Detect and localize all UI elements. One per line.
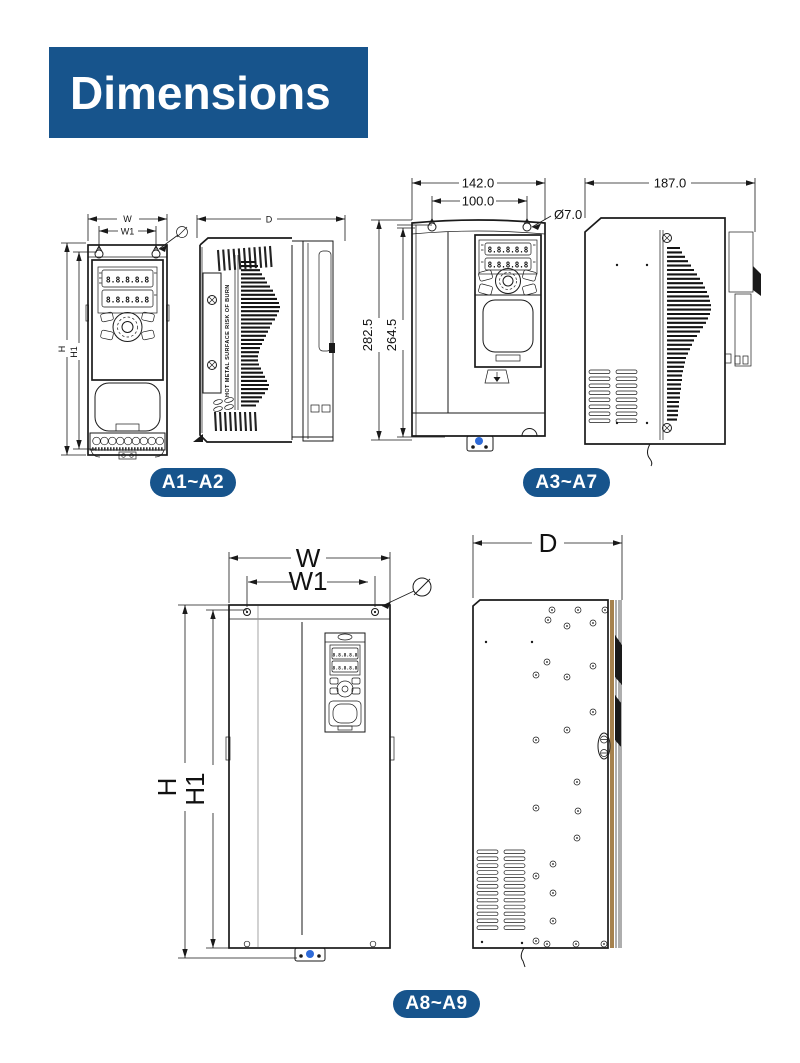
a8a9-dim-w1: W1: [289, 566, 328, 596]
a8a9-cable: [521, 948, 525, 967]
a3a7-front-dimensions: 142.0 100.0 Ø7.0 282.5 264.5: [360, 176, 582, 441]
a3a7-heatsink-fins: [667, 248, 711, 420]
a1a2-keypad: 8.8.8.8.8 8.8.8.8.8: [92, 260, 163, 380]
a3a7-dim-height-inner: 264.5: [384, 319, 399, 352]
a1a2-heatsink-fins: [241, 262, 280, 406]
a8a9-front-view: 8.8.8.8.8 8.8.8.8.8: [226, 605, 394, 961]
a3a7-dim-width-outer: 142.0: [462, 176, 495, 191]
a1a2-display-row1: 8.8.8.8.8: [106, 276, 150, 285]
a8a9-vent-slots: [477, 850, 525, 930]
a3a7-dim-height-outer: 282.5: [360, 319, 375, 352]
a1a2-warning-label: HOT METAL SURFACE RISK OF BURN: [225, 284, 231, 397]
figure-a8a9-drawing: W W1 H H1: [160, 525, 640, 970]
a3a7-dim-depth: 187.0: [654, 176, 687, 191]
a3a7-front-view: 8.8.8.8.8 8.8.8.8.8: [412, 219, 545, 451]
a8a9-display-row2: 8.8.8.8.8: [333, 666, 358, 672]
a3a7-vent-slots: [589, 370, 637, 423]
section-header: Dimensions: [49, 47, 368, 138]
a1a2-front-view: 8.8.8.8.8 8.8.8.8.8: [86, 245, 169, 459]
a8a9-dim-h: H: [152, 778, 182, 797]
diameter-symbol: [159, 227, 188, 253]
a8a9-side-dimensions: D: [473, 528, 622, 600]
a1a2-dim-d: D: [266, 215, 273, 225]
a3a7-keypad: 8.8.8.8.8 8.8.8.8.8: [475, 235, 541, 367]
a3a7-blue-dot: [475, 437, 483, 445]
badge-a3a7: A3~A7: [523, 468, 610, 497]
a8a9-blue-dot: [306, 950, 314, 958]
figure-a3a7-drawing: 142.0 100.0 Ø7.0 282.5 264.5 8.8.8.8.8: [355, 170, 775, 470]
a1a2-dim-h: H: [57, 346, 67, 353]
a8a9-side-view: [473, 600, 622, 967]
a3a7-side-view: [585, 218, 761, 466]
a1a2-rib-band-bottom: [215, 412, 256, 431]
a3a7-ground-symbol: [485, 370, 509, 383]
page-title: Dimensions: [49, 66, 331, 120]
a3a7-side-dimensions: 187.0: [585, 176, 755, 233]
a1a2-dim-w: W: [123, 214, 132, 224]
a1a2-dial: [113, 313, 142, 342]
a8a9-display-row1: 8.8.8.8.8: [333, 653, 358, 659]
a1a2-side-view: HOT METAL SURFACE RISK OF BURN: [193, 238, 335, 442]
a8a9-bottom-bracket: [295, 948, 325, 961]
a1a2-display-row2: 8.8.8.8.8: [106, 296, 150, 305]
a3a7-dim-width-inner: 100.0: [462, 194, 495, 209]
a1a2-dim-w1: W1: [121, 227, 135, 237]
a1a2-front-dimensions: W W1 H H1: [57, 214, 188, 455]
a3a7-dim-hole: Ø7.0: [554, 207, 582, 222]
a8a9-screws: [481, 607, 608, 947]
a8a9-gasket-strip: [610, 600, 614, 948]
a8a9-dim-d: D: [539, 528, 558, 558]
a3a7-display-row1: 8.8.8.8.8: [488, 246, 529, 255]
figure-a1a2-drawing: W W1 H H1: [55, 205, 350, 460]
a1a2-side-dimensions: D: [197, 215, 345, 242]
a8a9-dim-h1: H1: [180, 772, 210, 805]
a3a7-cable: [648, 444, 652, 466]
a8a9-keypad: 8.8.8.8.8 8.8.8.8.8: [325, 633, 365, 732]
a1a2-dim-h1: H1: [69, 346, 79, 358]
a3a7-dial: [496, 269, 521, 294]
a3a7-bottom-bracket: [467, 436, 493, 451]
badge-a8a9: A8~A9: [393, 990, 480, 1018]
page: Dimensions W W1: [0, 0, 800, 1063]
a1a2-rib-band-top: [218, 246, 272, 271]
badge-a1a2: A1~A2: [150, 468, 236, 497]
